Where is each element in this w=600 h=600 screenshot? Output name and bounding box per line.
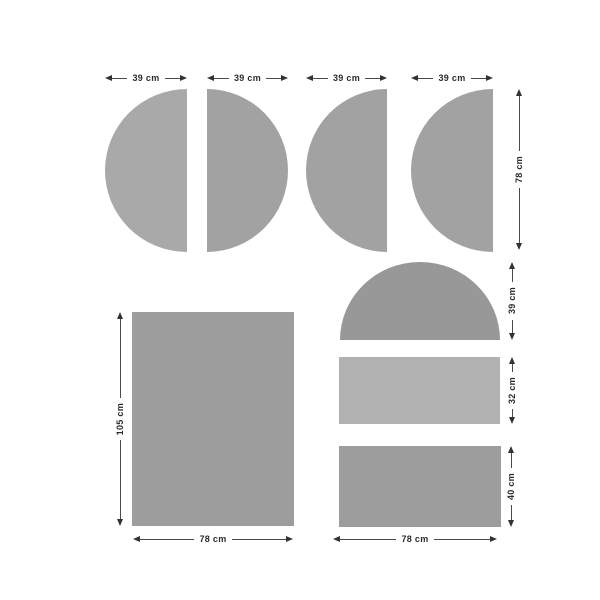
dimension-label: 78 cm [515,151,524,188]
arrow-down-icon [516,243,522,250]
dimension-label: 39 cm [127,74,164,83]
semicircle-left-1 [105,89,187,252]
dimension-line [471,78,486,79]
arrow-down-icon [508,520,514,527]
arrow-left-icon [306,75,313,81]
dimension-line [120,440,121,519]
arrow-down-icon [509,333,515,340]
dimension-label: 39 cm [328,74,365,83]
dimension-line [112,78,127,79]
dimension-line [519,188,520,243]
semicircle-right [207,89,288,252]
dimension-line [313,78,328,79]
dimension-line [266,78,281,79]
dimension-label: 78 cm [396,535,433,544]
arrow-right-icon [281,75,288,81]
arrow-left-icon [105,75,112,81]
dimension-large-rect-height: 105 cm [112,312,128,526]
dimension-label: 39 cm [508,282,517,319]
dimension-line [512,269,513,282]
dimension-right-column-width: 78 cm [333,532,497,546]
semicircle-left-2 [306,89,387,252]
arrow-down-icon [117,519,123,526]
arrow-right-icon [380,75,387,81]
dimension-line [512,320,513,333]
arrow-left-icon [411,75,418,81]
arrow-up-icon [509,357,515,364]
dimension-label: 78 cm [194,535,231,544]
dimension-line [512,364,513,372]
arrow-right-icon [490,536,497,542]
large-rectangle [132,312,294,526]
dimension-line [519,96,520,151]
lower-rectangle [339,446,501,527]
arrow-up-icon [516,89,522,96]
dimension-line [434,539,490,540]
dimension-label: 105 cm [116,398,125,440]
dimension-line [140,539,194,540]
dimension-line [511,453,512,468]
dimension-semicircle-width-4: 39 cm [411,71,493,85]
arrow-right-icon [180,75,187,81]
dimension-label: 39 cm [229,74,266,83]
arrow-right-icon [486,75,493,81]
dimension-label: 40 cm [507,468,516,505]
middle-rectangle [339,357,500,424]
arrow-up-icon [508,446,514,453]
dimension-label: 32 cm [508,372,517,409]
arrow-up-icon [117,312,123,319]
dimension-line [232,539,286,540]
dimension-label: 39 cm [433,74,470,83]
dimension-line [418,78,433,79]
dimension-semicircle-row-height: 78 cm [511,89,527,250]
dimension-line [365,78,380,79]
dimension-semicircle-width-2: 39 cm [207,71,288,85]
dimension-line [340,539,396,540]
dimension-line [165,78,180,79]
arrow-right-icon [286,536,293,542]
dimension-middle-rect-height: 32 cm [504,357,520,424]
dimension-lower-rect-height: 40 cm [503,446,519,527]
arrow-up-icon [509,262,515,269]
dimension-line [511,505,512,520]
arrow-left-icon [133,536,140,542]
arrow-down-icon [509,417,515,424]
dimension-line [120,319,121,398]
arrow-left-icon [207,75,214,81]
dome-semicircle [340,262,500,340]
dimension-dome-height: 39 cm [504,262,520,340]
dimension-large-rect-width: 78 cm [133,532,293,546]
dimension-semicircle-width-3: 39 cm [306,71,387,85]
dimension-line [512,409,513,417]
semicircle-left-3 [411,89,493,252]
dimension-line [214,78,229,79]
arrow-left-icon [333,536,340,542]
dimensions-diagram: 39 cm 39 cm 39 cm 39 cm 78 cm [0,0,600,600]
dimension-semicircle-width-1: 39 cm [105,71,187,85]
